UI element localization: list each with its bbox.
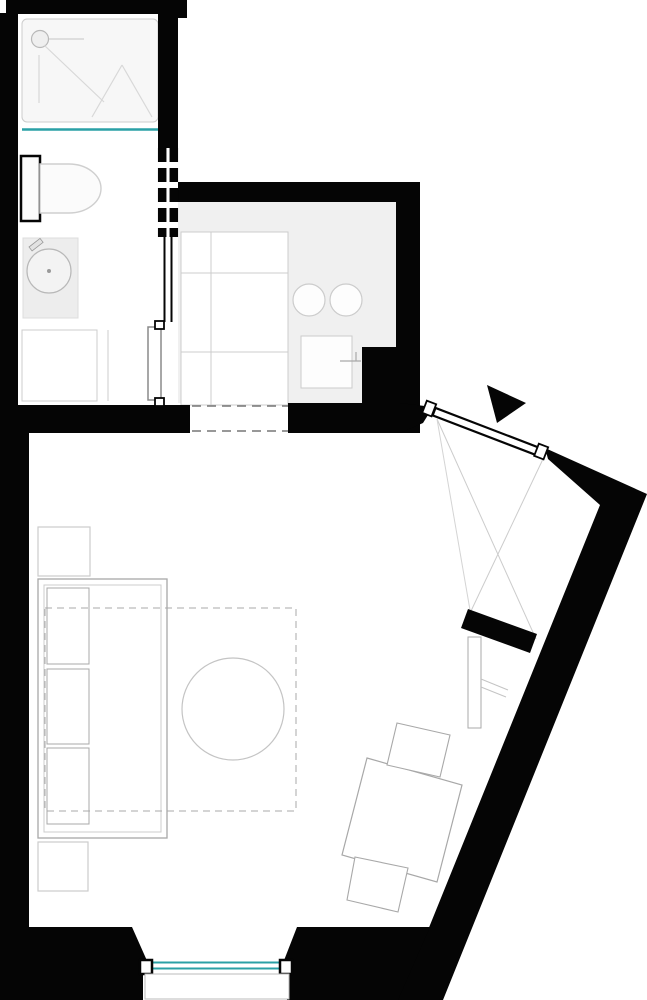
wardrobe-shelf — [468, 637, 481, 728]
bathroom-door-frame-block — [155, 398, 164, 406]
wardrobe-diagonal — [437, 419, 536, 639]
round-rug — [182, 658, 284, 760]
wardrobe-diagonal — [471, 459, 543, 611]
wardrobe-front-line — [437, 419, 470, 610]
window-sill — [145, 974, 289, 999]
sofa-cushion — [47, 748, 89, 824]
floor-plan — [0, 0, 647, 1000]
bathroom-door-leaf — [148, 327, 161, 400]
sofa-cushion — [47, 588, 89, 664]
washbasin-drain — [47, 269, 51, 273]
cooktop-burner-left — [293, 284, 325, 316]
toilet-bowl — [40, 164, 101, 213]
wall-bathroom-right — [158, 0, 178, 148]
entrance-arrow-icon — [487, 385, 526, 423]
shelf-divider-line — [481, 687, 506, 697]
shower-head-icon — [32, 31, 49, 48]
wall-kitchen-step — [362, 347, 420, 403]
cooktop-burner-right — [330, 284, 362, 316]
wall-bathroom-left — [0, 13, 18, 405]
toilet-cistern — [21, 156, 40, 221]
entry-door-leaf — [433, 408, 543, 457]
side-table-top — [38, 527, 90, 576]
kitchen-sink — [301, 336, 352, 388]
wall-bathroom-bottom — [0, 405, 190, 433]
sofa-cushion — [47, 669, 89, 744]
floor-plan-drawing — [0, 0, 647, 1000]
wall-living-left — [0, 433, 29, 932]
window-glazing — [152, 963, 282, 969]
window-frame-block-left — [140, 960, 152, 974]
washing-machine — [22, 330, 97, 401]
wall-bottom-left — [0, 927, 148, 1000]
wall-kitchen-top — [178, 182, 420, 202]
bathroom-door-frame-block — [155, 321, 164, 329]
window-frame-block-right — [280, 960, 292, 974]
wall-angled-right — [396, 448, 647, 1000]
kitchen-counter — [181, 232, 288, 405]
side-table-bottom — [38, 842, 88, 891]
